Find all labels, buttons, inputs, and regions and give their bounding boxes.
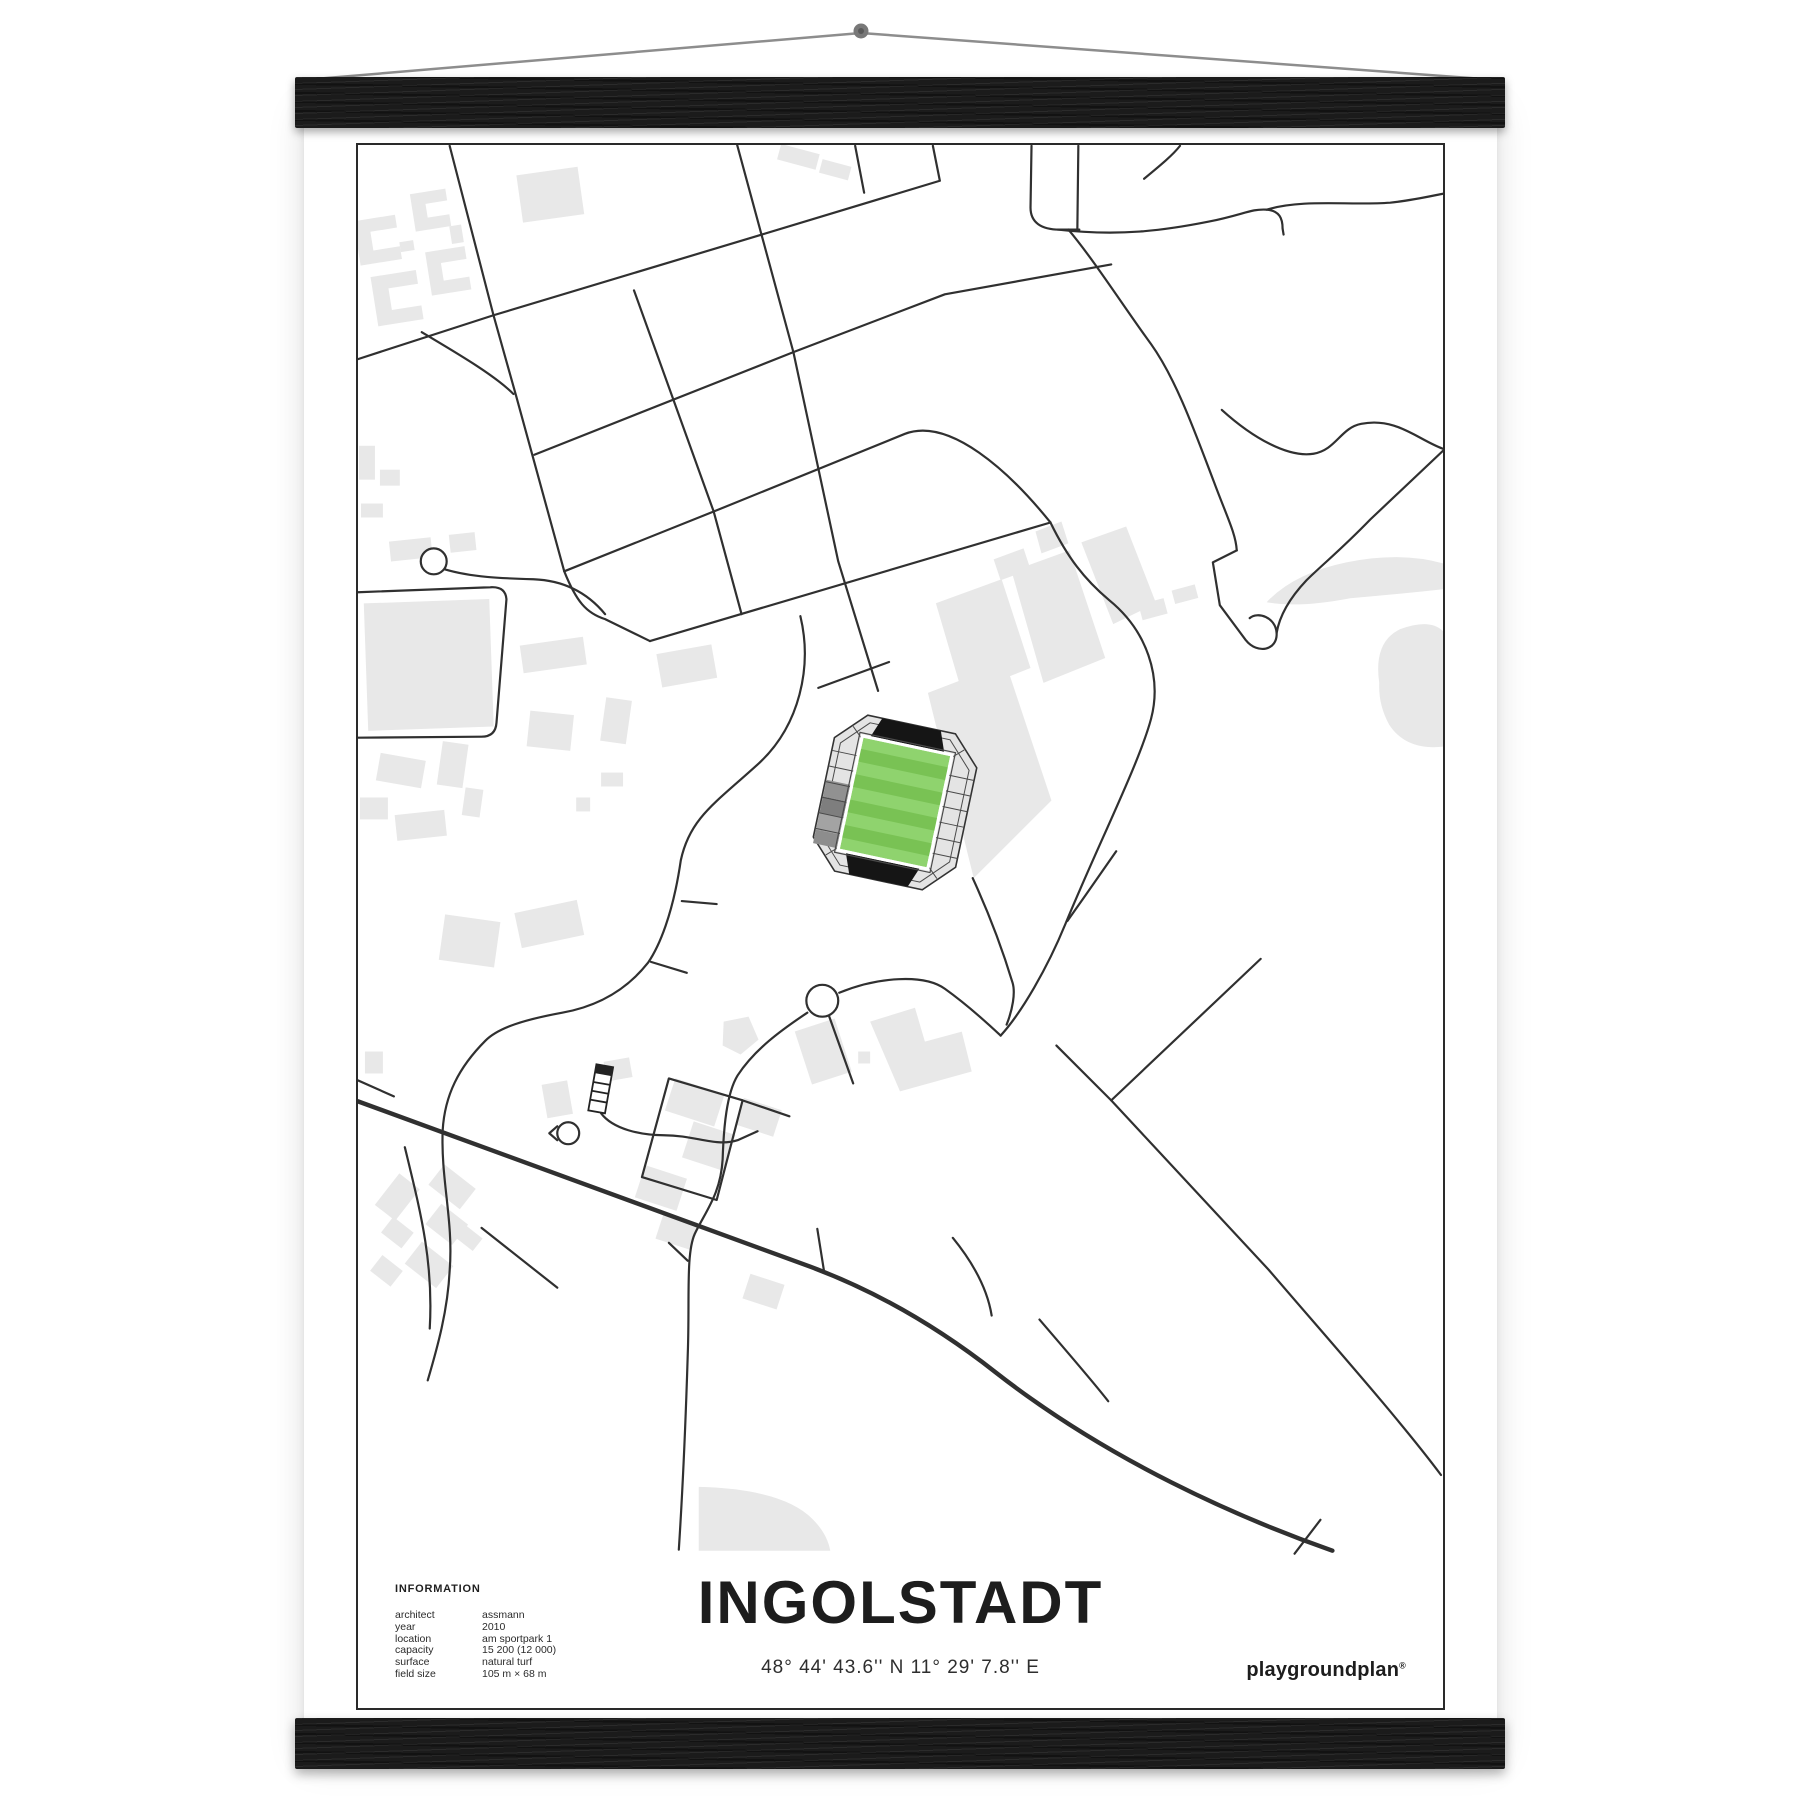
string-right — [861, 33, 1497, 80]
brand-logo: playgroundplan® — [1246, 1659, 1406, 1682]
park-area — [699, 1487, 831, 1551]
poster: INFORMATION architect assmann year 2010 … — [304, 95, 1497, 1748]
pond — [1378, 624, 1443, 747]
hanger-bar-top — [295, 77, 1505, 128]
hanger-bar-bottom — [295, 1718, 1505, 1769]
nail-center — [858, 28, 864, 34]
brand-text: playgroundplan — [1246, 1659, 1399, 1681]
roundabout — [806, 985, 838, 1017]
string-left — [303, 33, 861, 80]
map-frame: INFORMATION architect assmann year 2010 … — [356, 143, 1445, 1710]
main-road — [358, 1101, 1332, 1550]
product-image: INFORMATION architect assmann year 2010 … — [0, 0, 1800, 1800]
striped-tower-icon — [588, 1064, 613, 1113]
building-cluster-top-left — [358, 187, 475, 328]
stadium — [807, 709, 982, 895]
registered-mark-icon: ® — [1399, 1660, 1406, 1670]
poster-title: INGOLSTADT — [358, 1573, 1443, 1633]
building — [516, 167, 584, 223]
building-large-hall — [364, 599, 494, 731]
nail-icon — [854, 24, 869, 39]
stadium-map — [358, 145, 1443, 1708]
